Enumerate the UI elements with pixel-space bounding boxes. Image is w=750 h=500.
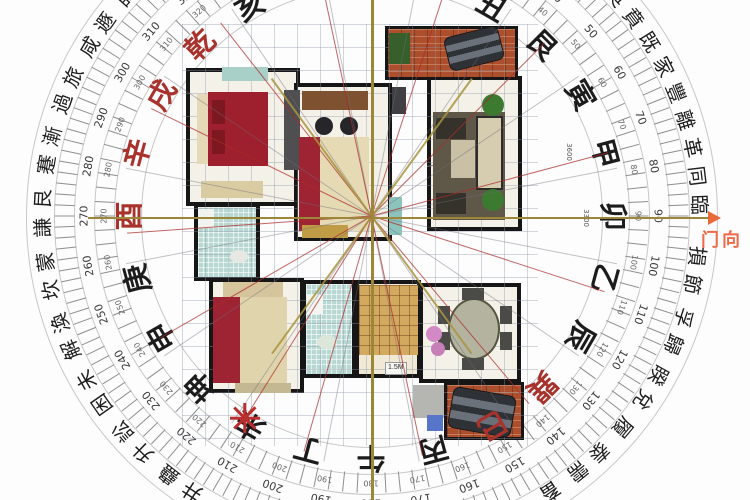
door-direction-label: 门向 — [701, 226, 743, 252]
dining-table — [448, 298, 500, 360]
flowers — [431, 342, 445, 356]
bed-red — [213, 297, 240, 383]
dresser — [302, 91, 368, 110]
tick-mark — [55, 216, 75, 217]
hexagram-char: 艮 — [26, 188, 56, 209]
dimension-label: 3600 — [565, 143, 573, 161]
mountain-char-卯: 卯 — [594, 201, 636, 230]
horizontal-axis-line — [88, 217, 708, 219]
degree-label: 270 — [78, 206, 91, 227]
degree-label-inner: 80 — [629, 164, 640, 176]
stool — [315, 117, 333, 135]
hexagram-char: 蹇 — [29, 152, 61, 176]
hexagram-char: 同 — [683, 164, 714, 187]
cabinet — [413, 385, 444, 418]
hexagram-char: 謙 — [26, 217, 56, 238]
degree-label: 90 — [652, 209, 665, 223]
mountain-char-酉: 酉 — [106, 201, 148, 230]
sofa — [476, 116, 503, 190]
vertical-axis-line — [371, 0, 374, 500]
plant — [389, 33, 410, 64]
flowers — [426, 326, 442, 342]
degree-label: 80 — [646, 158, 661, 174]
door-direction-arrow-icon — [708, 211, 721, 225]
plant — [482, 94, 504, 116]
luopan-floorplan-diagram: 1010202030304040505060607070808090901001… — [0, 0, 750, 500]
chair — [500, 332, 512, 350]
hexagram-char: 蒙 — [28, 250, 60, 274]
sink — [230, 250, 248, 263]
